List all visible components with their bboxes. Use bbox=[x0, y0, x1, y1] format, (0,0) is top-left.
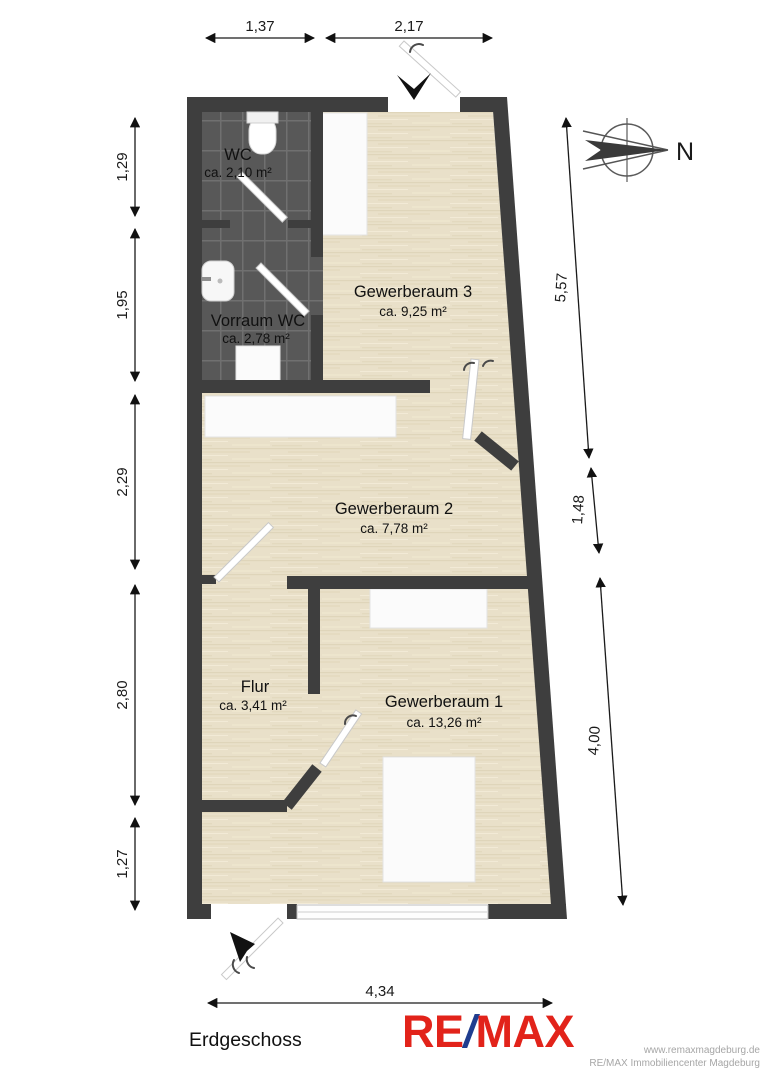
dimension-label: 2,29 bbox=[114, 467, 131, 496]
sink-icon bbox=[202, 261, 234, 301]
room-area-gewerberaum2: ca. 7,78 m² bbox=[360, 521, 428, 536]
footer-office: RE/MAX Immobiliencenter Magdeburg bbox=[589, 1058, 760, 1069]
dimension-label: 5,57 bbox=[552, 273, 571, 303]
wall-top-left-segment bbox=[187, 97, 388, 112]
dimension-label: 4,34 bbox=[365, 983, 394, 1000]
room-label-gewerberaum1: Gewerberaum 1 bbox=[385, 693, 503, 711]
dimension-label: 1,48 bbox=[569, 495, 588, 525]
wall-gewerberaum3-south bbox=[202, 380, 430, 393]
cabinet-gewerberaum3 bbox=[318, 113, 367, 235]
footer-website: www.remaxmagdeburg.de bbox=[643, 1045, 761, 1056]
wall-wc-vertical-upper bbox=[311, 112, 323, 257]
entrance-arrow-icon bbox=[230, 932, 255, 962]
remax-logo-max: MAX bbox=[476, 1006, 575, 1057]
room-label-flur: Flur bbox=[241, 678, 270, 696]
dimension-label: 1,95 bbox=[114, 290, 131, 319]
room-area-flur: ca. 3,41 m² bbox=[219, 698, 287, 713]
room-area-gewerberaum3: ca. 9,25 m² bbox=[379, 304, 447, 319]
wall-wc-divider-left bbox=[202, 220, 230, 228]
floor-plan-canvas: WC ca. 2,10 m² Vorraum WC ca. 2,78 m² Ge… bbox=[0, 0, 763, 1080]
entrance-door-bottom bbox=[221, 918, 283, 980]
entrance-arrow-icon bbox=[397, 73, 431, 100]
wall-left bbox=[187, 97, 202, 919]
room-label-vorraum-wc: Vorraum WC bbox=[211, 312, 306, 330]
compass-rose: N bbox=[583, 118, 694, 182]
wall-flur-south bbox=[202, 800, 287, 812]
dimension-line bbox=[600, 578, 623, 905]
dimension-label: 4,00 bbox=[585, 726, 604, 756]
dimension-label: 1,29 bbox=[114, 152, 131, 181]
table-gewerberaum1 bbox=[383, 757, 475, 882]
dimension-label: 1,37 bbox=[245, 18, 274, 35]
dimension-label: 2,80 bbox=[114, 680, 131, 709]
wall-bottom-right-segment bbox=[488, 904, 566, 919]
room-area-wc: ca. 2,10 m² bbox=[204, 165, 272, 180]
room-area-vorraum-wc: ca. 2,78 m² bbox=[222, 331, 290, 346]
compass-north-label: N bbox=[676, 138, 694, 166]
wall-bottom-stub bbox=[287, 904, 297, 919]
counter-gewerberaum2 bbox=[205, 396, 396, 437]
floor-plan-page: WC ca. 2,10 m² Vorraum WC ca. 2,78 m² Ge… bbox=[0, 0, 763, 1080]
wall-gewerberaum2-south bbox=[287, 576, 532, 589]
dimension-line bbox=[591, 468, 599, 553]
room-label-gewerberaum3: Gewerberaum 3 bbox=[354, 283, 472, 301]
room-label-gewerberaum2: Gewerberaum 2 bbox=[335, 500, 453, 518]
dimension-label: 2,17 bbox=[394, 18, 423, 35]
wall-wc-divider-right bbox=[288, 220, 313, 228]
entrance-door-top bbox=[397, 41, 460, 100]
wall-flur-north-stub bbox=[202, 575, 216, 584]
remax-logo-re: RE bbox=[402, 1006, 464, 1057]
window-bottom bbox=[297, 905, 488, 919]
dimension-label: 1,27 bbox=[114, 849, 131, 878]
wall-flur-east bbox=[308, 576, 320, 694]
footer: Erdgeschoss RE/MAX www.remaxmagdeburg.de… bbox=[189, 1006, 760, 1069]
floor-title: Erdgeschoss bbox=[189, 1029, 302, 1051]
room-label-wc: WC bbox=[224, 146, 252, 164]
sideboard-gewerberaum1-top bbox=[370, 589, 487, 628]
remax-logo: RE/MAX bbox=[402, 1006, 575, 1057]
room-area-gewerberaum1: ca. 13,26 m² bbox=[406, 715, 482, 730]
wall-bottom-left-segment bbox=[187, 904, 211, 919]
